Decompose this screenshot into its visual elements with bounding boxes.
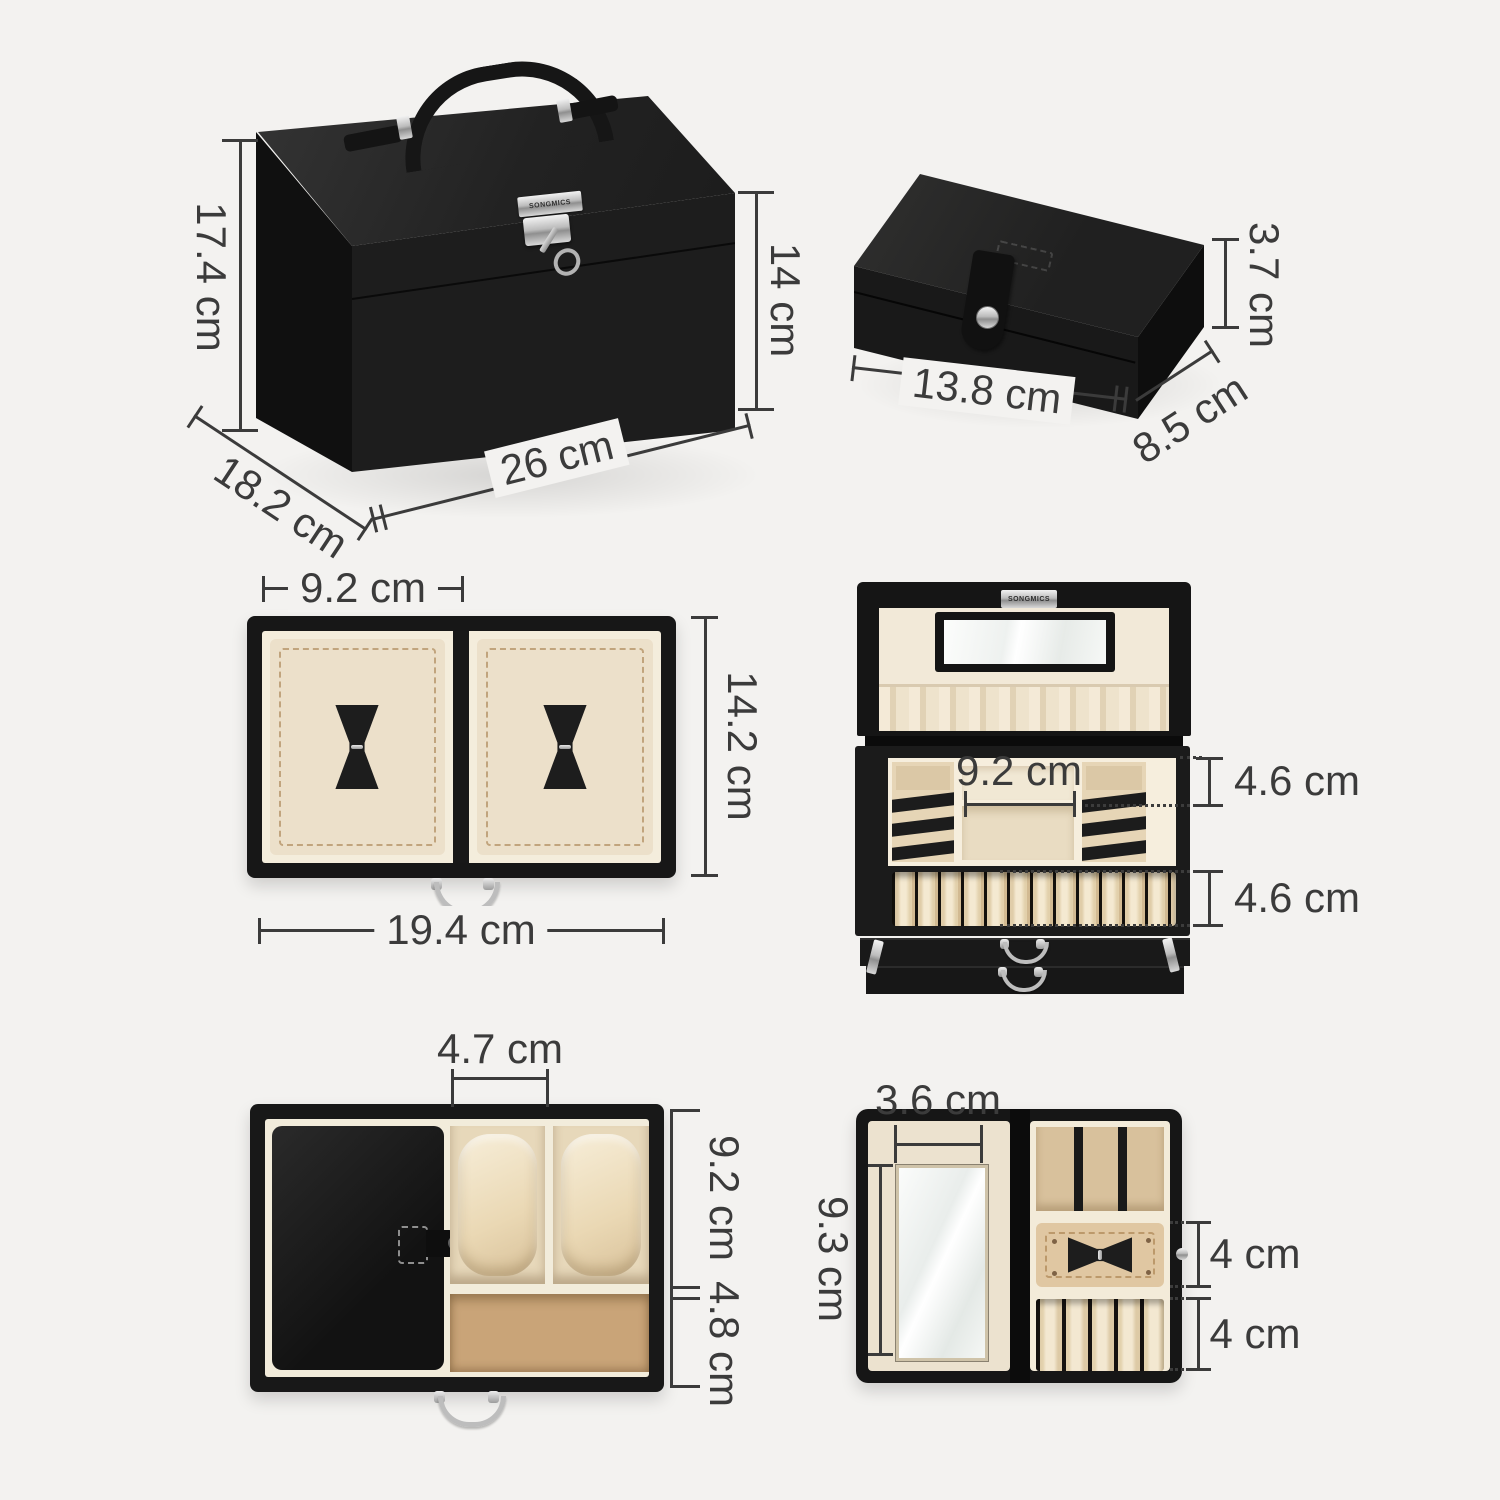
dim-cap: [670, 1286, 700, 1289]
dim-label-ring-row-depth: 4 cm: [1209, 1313, 1300, 1355]
dim-line-body-height: [755, 191, 758, 411]
pad-drawer-center-divider: [453, 631, 469, 863]
dim-leader: [1000, 870, 1202, 873]
dim-line-total-height: [239, 139, 242, 432]
dim-label-total-height: 17.4 cm: [190, 202, 232, 351]
dim-tick: [980, 1125, 983, 1163]
dim-tick: [744, 413, 753, 439]
dim-label-pad-width: 9.2 cm: [288, 564, 438, 612]
watch-pillow-1: [458, 1134, 537, 1276]
dim-line-case-height: [1224, 238, 1227, 329]
dim-label-pad-depth: 4 cm: [1209, 1233, 1300, 1275]
dim-label-tray-depth: 4.6 cm: [1234, 760, 1360, 802]
dim-label-inner-width: 19.4 cm: [374, 906, 547, 954]
open-case-ring-roll-row: [1036, 1299, 1164, 1371]
open-box-right-top-cell: [1086, 766, 1142, 790]
open-box-ruffle-pocket: [879, 684, 1169, 731]
dim-cap: [868, 1353, 893, 1356]
open-box-left-top-cell: [896, 766, 950, 790]
dim-cap: [670, 1109, 700, 1112]
dim-label-middle-width: 9.2 cm: [956, 750, 1082, 792]
dim-tick: [1204, 339, 1221, 362]
watch-drawer-handle: [438, 1396, 506, 1427]
dim-leader: [1085, 804, 1202, 807]
travel-case-snap-button: [976, 306, 999, 329]
dim-label-mirror-height: 9.3 cm: [812, 1196, 854, 1322]
dim-line-drawer-depths: [670, 1110, 673, 1388]
watch-drawer-open-compartment: [450, 1294, 649, 1372]
dim-tick: [357, 517, 374, 540]
dim-tick: [461, 576, 464, 602]
dim-tick: [262, 576, 265, 602]
dim-tick: [451, 1069, 454, 1107]
dim-label-watch-slot: 4.7 cm: [437, 1028, 563, 1070]
dim-line-ring-row-depth: [1197, 1297, 1200, 1371]
dim-tick: [662, 918, 665, 944]
dim-label-case-height: 3.7 cm: [1243, 222, 1285, 348]
dim-cap: [868, 1164, 893, 1167]
dim-cap: [670, 1297, 700, 1300]
dim-line-mirror-width: [895, 1143, 983, 1146]
open-case-slot-section: [1036, 1127, 1164, 1211]
watch-pillow-2: [561, 1134, 641, 1276]
dim-label-inner-depth: 14.2 cm: [721, 671, 763, 820]
dim-line-pad-depth: [1197, 1221, 1200, 1288]
open-case-slot-divider: [1074, 1127, 1083, 1211]
dim-tick: [187, 405, 204, 428]
dim-line-mirror-height: [879, 1165, 882, 1355]
earring-hole: [1052, 1239, 1057, 1244]
dim-leader: [1000, 924, 1202, 927]
open-box-center-bottom-compartment: [962, 806, 1074, 860]
dim-line-watch-slot: [452, 1077, 548, 1080]
dim-tick: [894, 1125, 897, 1163]
open-case-slot-divider: [1118, 1127, 1127, 1211]
open-case-mirror: [896, 1165, 988, 1361]
dim-cap: [670, 1385, 700, 1388]
open-box-brand-plate: SONGMICS: [1001, 590, 1057, 608]
dim-tick: [546, 1069, 549, 1107]
dim-label-ring-depth: 4.6 cm: [1234, 877, 1360, 919]
open-case-snap-stud: [1176, 1248, 1188, 1260]
dim-label-body-height: 14 cm: [764, 243, 806, 357]
product-dimension-sheet: SONGMICS 17.4 cm 14 cm 18.2 cm 26 cm 3.7…: [0, 0, 1500, 1500]
earring-hole: [1052, 1271, 1057, 1276]
dim-line-middle-width: [965, 803, 1076, 806]
dim-line-inner-depth: [704, 616, 707, 877]
open-box-mirror: [944, 620, 1106, 664]
earring-hole: [1146, 1238, 1151, 1243]
dim-label-mirror-width: 3.6 cm: [875, 1079, 1001, 1121]
open-case-spine: [1010, 1109, 1030, 1383]
brand-logo-text: SONGMICS: [1001, 590, 1057, 608]
dim-tick: [964, 791, 967, 817]
open-box-ring-roll-row: [892, 872, 1176, 926]
earring-hole: [1146, 1270, 1151, 1275]
dim-tick: [258, 918, 261, 944]
pouch-stitch-patch: [398, 1226, 428, 1264]
dim-line-tray-depth: [1208, 757, 1211, 807]
dim-label-lower-depth: 4.8 cm: [703, 1281, 745, 1407]
dim-label-upper-depth: 9.2 cm: [703, 1135, 745, 1261]
dim-line-ring-depth: [1208, 870, 1211, 927]
dim-tick: [1073, 791, 1076, 817]
